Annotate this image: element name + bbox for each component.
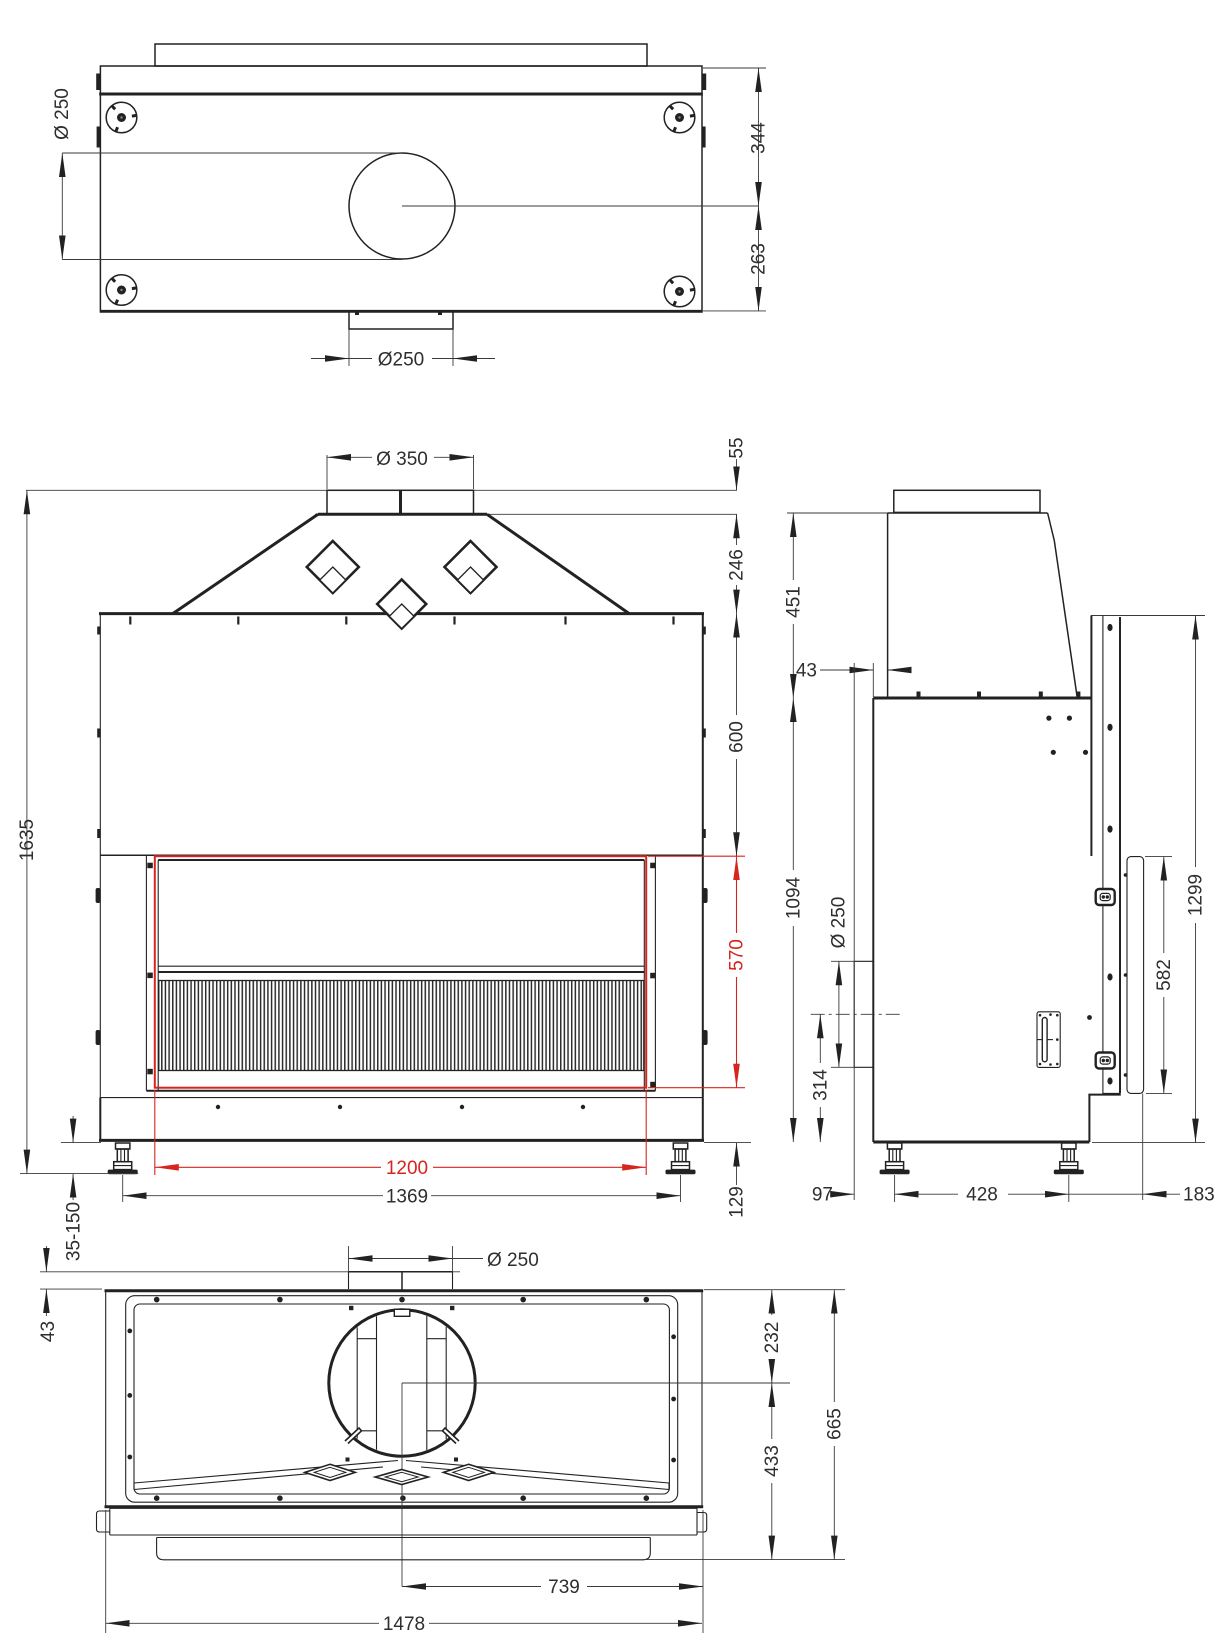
svg-text:Ø 250: Ø 250 <box>829 897 850 949</box>
svg-text:428: 428 <box>966 1185 998 1206</box>
svg-text:129: 129 <box>727 1186 748 1218</box>
svg-text:344: 344 <box>749 122 770 154</box>
svg-text:43: 43 <box>38 1321 59 1342</box>
svg-text:97: 97 <box>812 1185 833 1206</box>
svg-text:Ø 350: Ø 350 <box>376 449 428 470</box>
svg-text:451: 451 <box>784 586 805 618</box>
svg-text:600: 600 <box>727 721 748 753</box>
svg-text:1299: 1299 <box>1186 874 1207 916</box>
svg-text:183: 183 <box>1183 1185 1215 1206</box>
svg-text:1478: 1478 <box>383 1614 425 1635</box>
svg-text:Ø250: Ø250 <box>378 350 424 371</box>
svg-text:Ø 250: Ø 250 <box>52 88 73 140</box>
svg-text:43: 43 <box>796 661 817 682</box>
svg-text:665: 665 <box>825 1408 846 1440</box>
svg-text:1635: 1635 <box>17 819 38 861</box>
svg-text:582: 582 <box>1154 959 1175 991</box>
svg-text:314: 314 <box>811 1069 832 1101</box>
svg-text:1369: 1369 <box>386 1187 428 1208</box>
svg-text:246: 246 <box>727 549 748 581</box>
svg-text:55: 55 <box>727 437 748 458</box>
svg-text:1094: 1094 <box>784 876 805 919</box>
svg-text:1200: 1200 <box>386 1158 428 1179</box>
svg-text:232: 232 <box>762 1322 783 1354</box>
svg-text:35-150: 35-150 <box>63 1202 84 1261</box>
svg-text:Ø 250: Ø 250 <box>487 1250 539 1271</box>
svg-text:433: 433 <box>762 1445 783 1477</box>
svg-text:570: 570 <box>727 939 748 971</box>
svg-text:263: 263 <box>749 243 770 275</box>
svg-text:739: 739 <box>548 1577 580 1598</box>
